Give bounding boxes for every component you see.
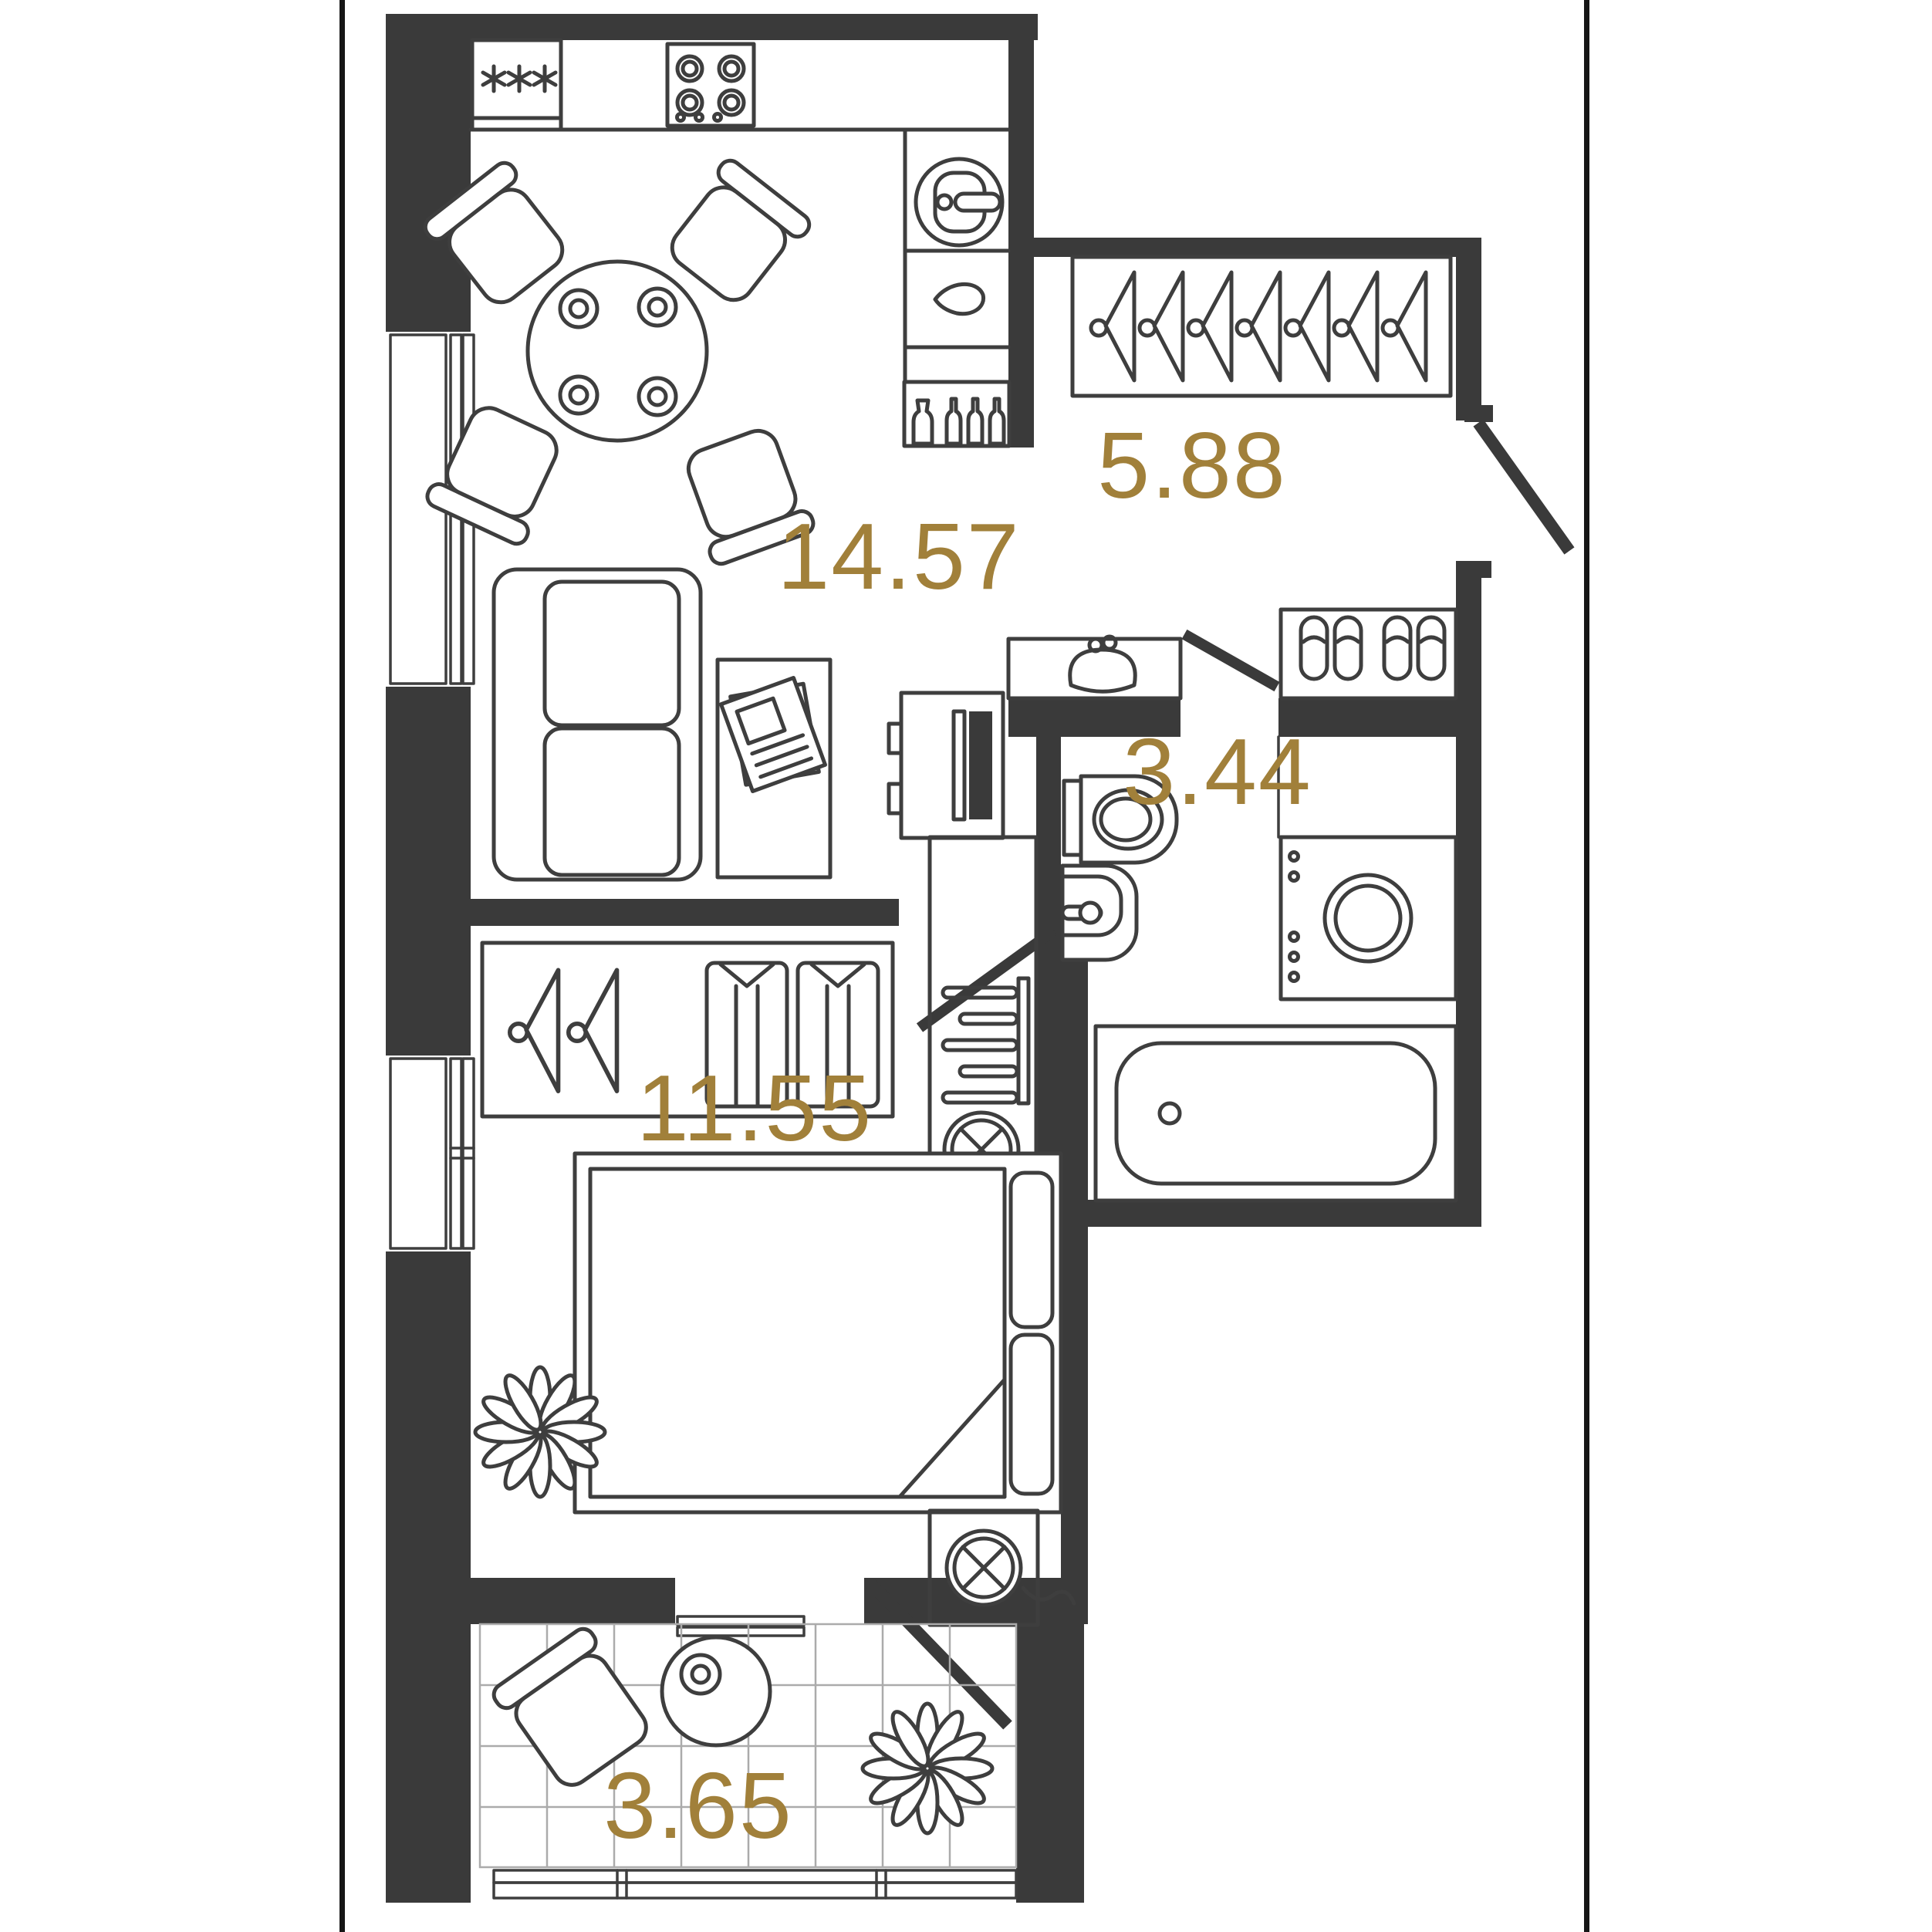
hanger-icon [1140, 272, 1183, 380]
page-frame-left-line [339, 0, 345, 1932]
slipper-icon [1301, 617, 1327, 679]
shoe-rack [1281, 610, 1456, 698]
balcony-door-sill [677, 1616, 804, 1636]
wall-entrance-hinge-block [1464, 405, 1493, 422]
wall-right-lower [1456, 571, 1481, 1227]
stove [667, 44, 754, 126]
area-label-bathroom: 3.44 [1123, 719, 1312, 824]
pillow [1011, 1335, 1052, 1494]
wall-bathroom-left [1036, 698, 1061, 1200]
utility-shaft [930, 837, 1045, 1200]
window-balcony-rail [494, 1870, 1016, 1898]
slipper-icon [1384, 617, 1410, 679]
bathroom-door-leaf [1184, 634, 1277, 687]
hanger-icon [1383, 272, 1426, 380]
wall-left-lower [386, 1251, 471, 1903]
cup-icon [639, 378, 676, 415]
window-bedroom [390, 1059, 474, 1248]
wall-bedroom-right [1061, 926, 1088, 1578]
entrance-door-leaf [1478, 423, 1569, 551]
sofa [494, 569, 701, 880]
wall-left-upper [386, 14, 471, 332]
wall-left-middle [386, 687, 471, 1056]
wall-balcony-right [1016, 1624, 1084, 1903]
double-bed [575, 1153, 1061, 1512]
cup-icon [560, 377, 597, 414]
towel-radiator-icon [943, 978, 1028, 1103]
wall-bedroom-bottom-left [471, 1578, 675, 1624]
cup-icon [560, 290, 597, 327]
wall-living-bedroom-divider [471, 899, 899, 926]
room-hallway: 5.88 [1072, 257, 1456, 698]
entry-shelf [1008, 637, 1180, 698]
bathroom-sink [1062, 866, 1137, 960]
hanger-icon [1091, 272, 1134, 380]
area-label-hallway: 5.88 [1097, 413, 1286, 518]
dining-table [528, 262, 707, 441]
floor-plan-page: 14.57 5.88 [0, 0, 1932, 1932]
wall-bathroom-bottom [1036, 1200, 1481, 1227]
hanger-icon [1285, 272, 1329, 380]
floor-plan-drawing: 14.57 5.88 [0, 0, 1932, 1932]
slipper-icon [1335, 617, 1361, 679]
sink-drop-icon [935, 284, 984, 313]
area-label-balcony: 3.65 [603, 1753, 792, 1858]
room-bathroom: 3.44 [1062, 719, 1456, 1201]
ventilation-icon [947, 1531, 1021, 1605]
tv-screen [969, 711, 992, 819]
coffee-table [716, 660, 834, 877]
room-kitchen-living: 14.57 [421, 40, 1021, 880]
wall-top [386, 14, 1038, 40]
area-label-kitchen-living: 14.57 [777, 504, 1020, 609]
bottle-bar [904, 382, 1009, 446]
room-bedroom: 11.55 [475, 943, 1074, 1625]
fridge [472, 40, 561, 130]
kitchen-sink [916, 159, 1002, 245]
pillow [1011, 1173, 1052, 1327]
area-label-bedroom: 11.55 [637, 1056, 873, 1160]
wall-hallway-top [1008, 238, 1481, 257]
tv-unit [889, 693, 1003, 838]
room-balcony: 3.65 [480, 1624, 1016, 1867]
coat-rack [1072, 257, 1451, 396]
wall-hallway-right-upper [1456, 257, 1481, 421]
bathtub [1096, 1026, 1456, 1201]
hanger-icon [1188, 272, 1231, 380]
page-frame-right-line [1584, 0, 1589, 1932]
hanger-icon [1334, 272, 1377, 380]
wall-kitchen-hall-divider [1008, 14, 1034, 448]
slipper-icon [1418, 617, 1444, 679]
cup-icon [639, 289, 676, 326]
dining-set [421, 157, 816, 567]
washing-machine [1281, 837, 1456, 999]
hanger-icon [1237, 272, 1280, 380]
balcony-table [662, 1637, 770, 1745]
